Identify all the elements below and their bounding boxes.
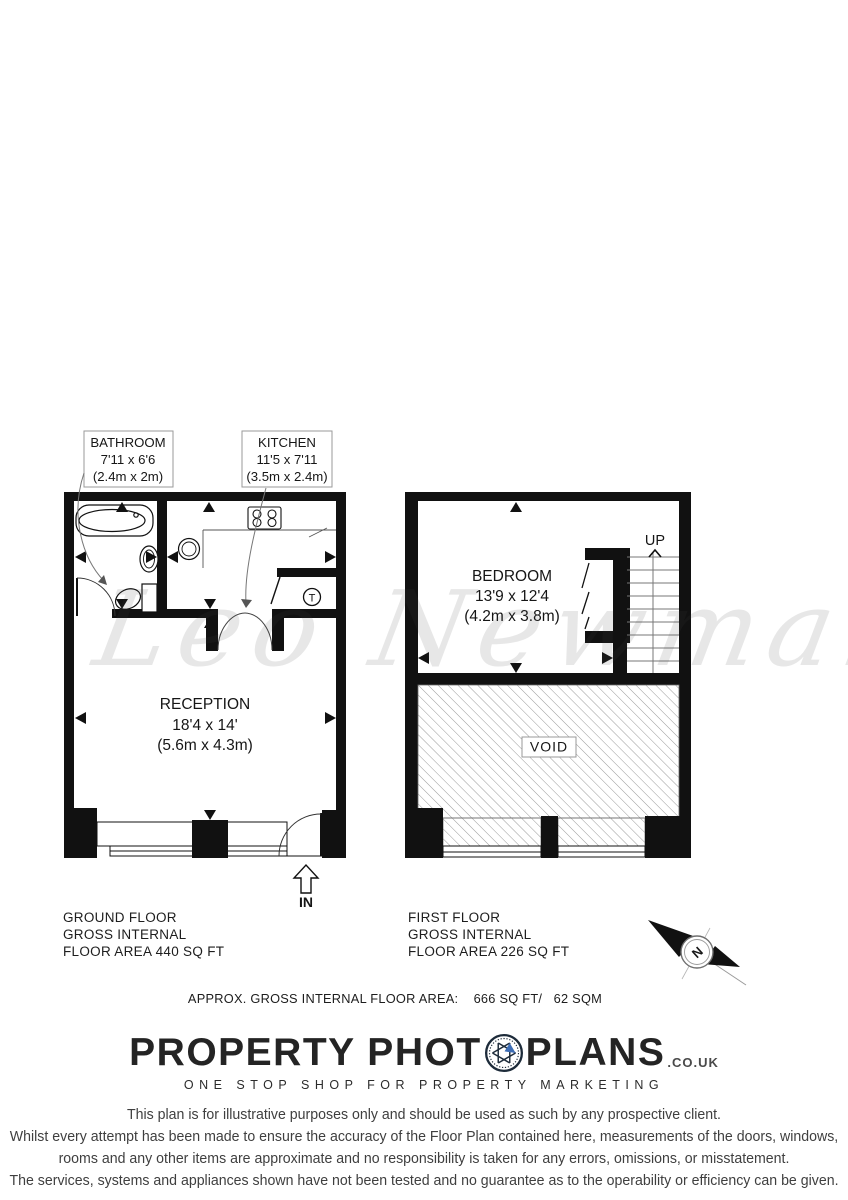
ground-floor-plan: T RECEPTION 18'4 x 14' (5. [64,492,346,910]
svg-text:IN: IN [299,894,313,910]
measurement-arrows-ground [75,502,336,820]
svg-text:(2.4m x 2m): (2.4m x 2m) [93,469,163,484]
entrance-arrow-icon: IN [294,865,318,910]
disclaimer: This plan is for illustrative purposes o… [4,1104,844,1192]
ground-floor-caption: GROUND FLOOR GROSS INTERNAL FLOOR AREA 4… [63,909,224,960]
logo-text-left: PROPERTY PHOT [129,1031,482,1075]
logo-tagline: ONE STOP SHOP FOR PROPERTY MARKETING [184,1078,664,1092]
bath-icon [76,505,153,536]
svg-text:11'5 x 7'11: 11'5 x 7'11 [256,452,317,467]
svg-text:RECEPTION: RECEPTION [160,696,250,713]
svg-text:UP: UP [645,533,665,549]
bathroom-leader-line [78,473,104,581]
stairs-up-label: UP [645,533,665,557]
camera-aperture-icon [483,1032,525,1074]
disclaimer-line4: The services, systems and appliances sho… [4,1170,844,1192]
kitchen-sink-icon [179,539,200,560]
double-door-arcs [218,613,272,650]
ground-floor-caption-line3: FLOOR AREA 440 SQ FT [63,943,224,960]
total-area-summary: APPROX. GROSS INTERNAL FLOOR AREA: 666 S… [0,991,848,1006]
logo-row: PROPERTY PHOT PLANS .CO.UK [129,1031,719,1075]
compass-icon: N [648,920,746,985]
toilet-icon [112,584,157,613]
floorplan-drawing: T RECEPTION 18'4 x 14' (5. [0,0,848,1200]
closet-icon [582,548,630,643]
first-floor-caption-line3: FLOOR AREA 226 SQ FT [408,943,569,960]
brand-logo: PROPERTY PHOT PLANS .CO.UK ONE STOP SHOP… [0,1031,848,1092]
svg-text:13'9 x 12'4: 13'9 x 12'4 [475,588,549,605]
kitchen-leader-line [246,488,266,603]
bathroom-leader-arrow-icon [98,575,107,585]
first-floor-caption-line1: FIRST FLOOR [408,909,569,926]
kitchen-leader-arrow-icon [241,599,252,608]
ground-floor-walls [64,492,346,858]
first-floor-plan: UP VOID [405,492,691,858]
svg-text:(3.5m x 2.4m): (3.5m x 2.4m) [246,469,327,484]
up-chevron-icon [649,550,661,557]
svg-text:T: T [309,593,316,605]
svg-text:7'11 x 6'6: 7'11 x 6'6 [101,452,156,467]
logo-text-right: PLANS [526,1031,666,1075]
bathroom-door-arc [77,578,115,616]
ground-floor-caption-line1: GROUND FLOOR [63,909,224,926]
svg-text:18'4 x 14': 18'4 x 14' [172,717,237,734]
logo-suffix: .CO.UK [667,1055,719,1075]
svg-text:BEDROOM: BEDROOM [472,568,552,585]
disclaimer-line1: This plan is for illustrative purposes o… [4,1104,844,1126]
ground-floor-caption-line2: GROSS INTERNAL [63,926,224,943]
bedroom-label: BEDROOM 13'9 x 12'4 (4.2m x 3.8m) [464,568,560,625]
svg-text:KITCHEN: KITCHEN [258,435,316,450]
floorplan-page: Leo Newman [0,0,848,1200]
reception-label: RECEPTION 18'4 x 14' (5.6m x 4.3m) [157,696,253,754]
void-label: VOID [522,737,576,757]
hob-icon [248,507,281,529]
stairs-icon [627,552,679,673]
disclaimer-line3: rooms and any other items are approximat… [4,1148,844,1170]
svg-text:BATHROOM: BATHROOM [90,435,165,450]
ground-floor-windows [97,820,322,858]
first-floor-caption-line2: GROSS INTERNAL [408,926,569,943]
boiler-t-icon: T [304,589,321,606]
disclaimer-line2: Whilst every attempt has been made to en… [4,1126,844,1148]
first-floor-caption: FIRST FLOOR GROSS INTERNAL FLOOR AREA 22… [408,909,569,960]
svg-text:(5.6m x 4.3m): (5.6m x 4.3m) [157,737,253,754]
svg-text:VOID: VOID [530,739,568,755]
svg-text:(4.2m x 3.8m): (4.2m x 3.8m) [464,608,560,625]
